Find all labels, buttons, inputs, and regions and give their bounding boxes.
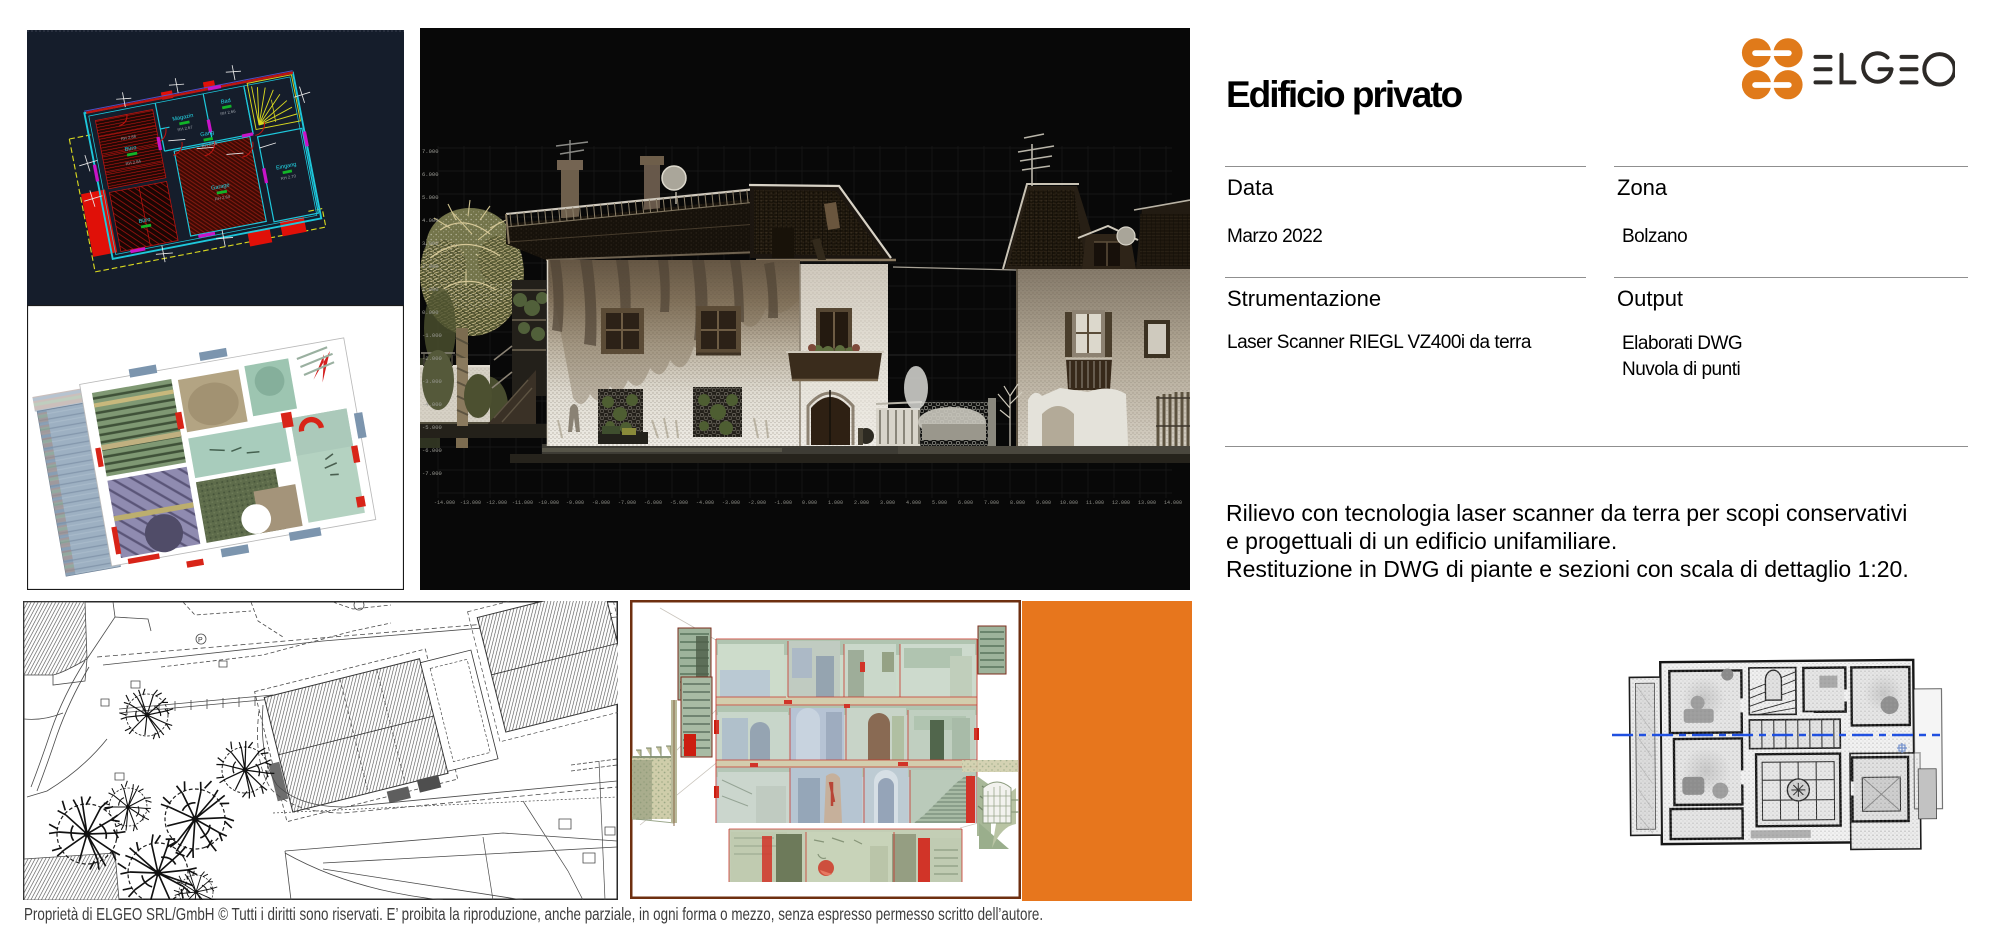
svg-text:14.000: 14.000	[1164, 500, 1182, 506]
svg-text:-7.000: -7.000	[422, 470, 442, 477]
svg-text:P: P	[198, 637, 203, 644]
svg-text:-3.000: -3.000	[722, 500, 740, 506]
svg-text:5.000: 5.000	[932, 500, 947, 506]
svg-text:-9.000: -9.000	[566, 500, 584, 506]
svg-text:-8.000: -8.000	[592, 500, 610, 506]
svg-text:6.000: 6.000	[958, 500, 973, 506]
svg-text:6.000: 6.000	[422, 171, 439, 178]
svg-text:-4.000: -4.000	[422, 401, 442, 408]
svg-text:7.000: 7.000	[984, 500, 999, 506]
svg-text:11.000: 11.000	[1086, 500, 1104, 506]
svg-text:-6.000: -6.000	[644, 500, 662, 506]
svg-text:-13.000: -13.000	[460, 500, 481, 506]
svg-text:8.000: 8.000	[1010, 500, 1025, 506]
svg-text:4.000: 4.000	[906, 500, 921, 506]
svg-text:1.000: 1.000	[422, 286, 439, 293]
svg-text:5.000: 5.000	[422, 194, 439, 201]
svg-text:-1.000: -1.000	[774, 500, 792, 506]
svg-text:2.000: 2.000	[854, 500, 869, 506]
svg-text:7.000: 7.000	[422, 148, 439, 155]
svg-text:-4.000: -4.000	[696, 500, 714, 506]
svg-text:-5.000: -5.000	[670, 500, 688, 506]
svg-text:-2.000: -2.000	[422, 355, 442, 362]
svg-text:-14.000: -14.000	[434, 500, 455, 506]
svg-text:-10.000: -10.000	[538, 500, 559, 506]
svg-text:0.000: 0.000	[802, 500, 817, 506]
svg-text:10.000: 10.000	[1060, 500, 1078, 506]
svg-text:-2.000: -2.000	[748, 500, 766, 506]
svg-text:13.000: 13.000	[1138, 500, 1156, 506]
svg-text:1.000: 1.000	[828, 500, 843, 506]
svg-text:-7.000: -7.000	[618, 500, 636, 506]
svg-text:-3.000: -3.000	[422, 378, 442, 385]
svg-text:-11.000: -11.000	[512, 500, 533, 506]
svg-text:3.000: 3.000	[422, 240, 439, 247]
svg-text:-1.000: -1.000	[422, 332, 442, 339]
svg-text:0.000: 0.000	[422, 309, 439, 316]
svg-text:9.000: 9.000	[1036, 500, 1051, 506]
svg-text:12.000: 12.000	[1112, 500, 1130, 506]
svg-text:4.000: 4.000	[422, 217, 439, 224]
svg-text:2.000: 2.000	[422, 263, 439, 270]
svg-text:3.000: 3.000	[880, 500, 895, 506]
svg-text:-12.000: -12.000	[486, 500, 507, 506]
svg-text:-6.000: -6.000	[422, 447, 442, 454]
svg-text:-5.000: -5.000	[422, 424, 442, 431]
